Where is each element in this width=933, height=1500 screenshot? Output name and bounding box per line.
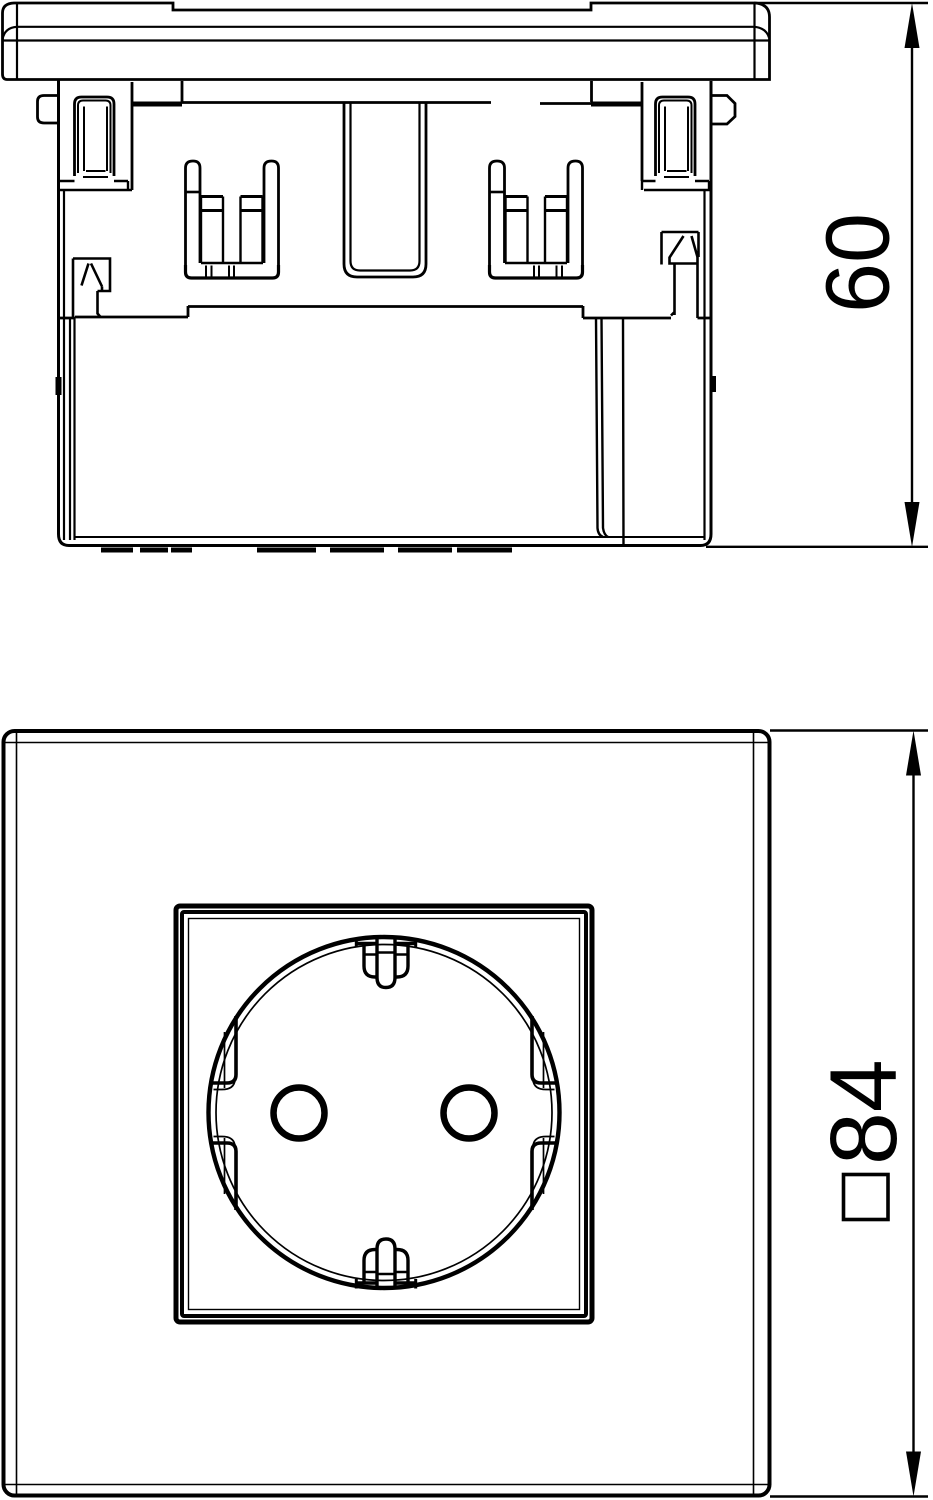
svg-text:60: 60 bbox=[809, 213, 909, 313]
svg-text:84: 84 bbox=[811, 1059, 917, 1165]
